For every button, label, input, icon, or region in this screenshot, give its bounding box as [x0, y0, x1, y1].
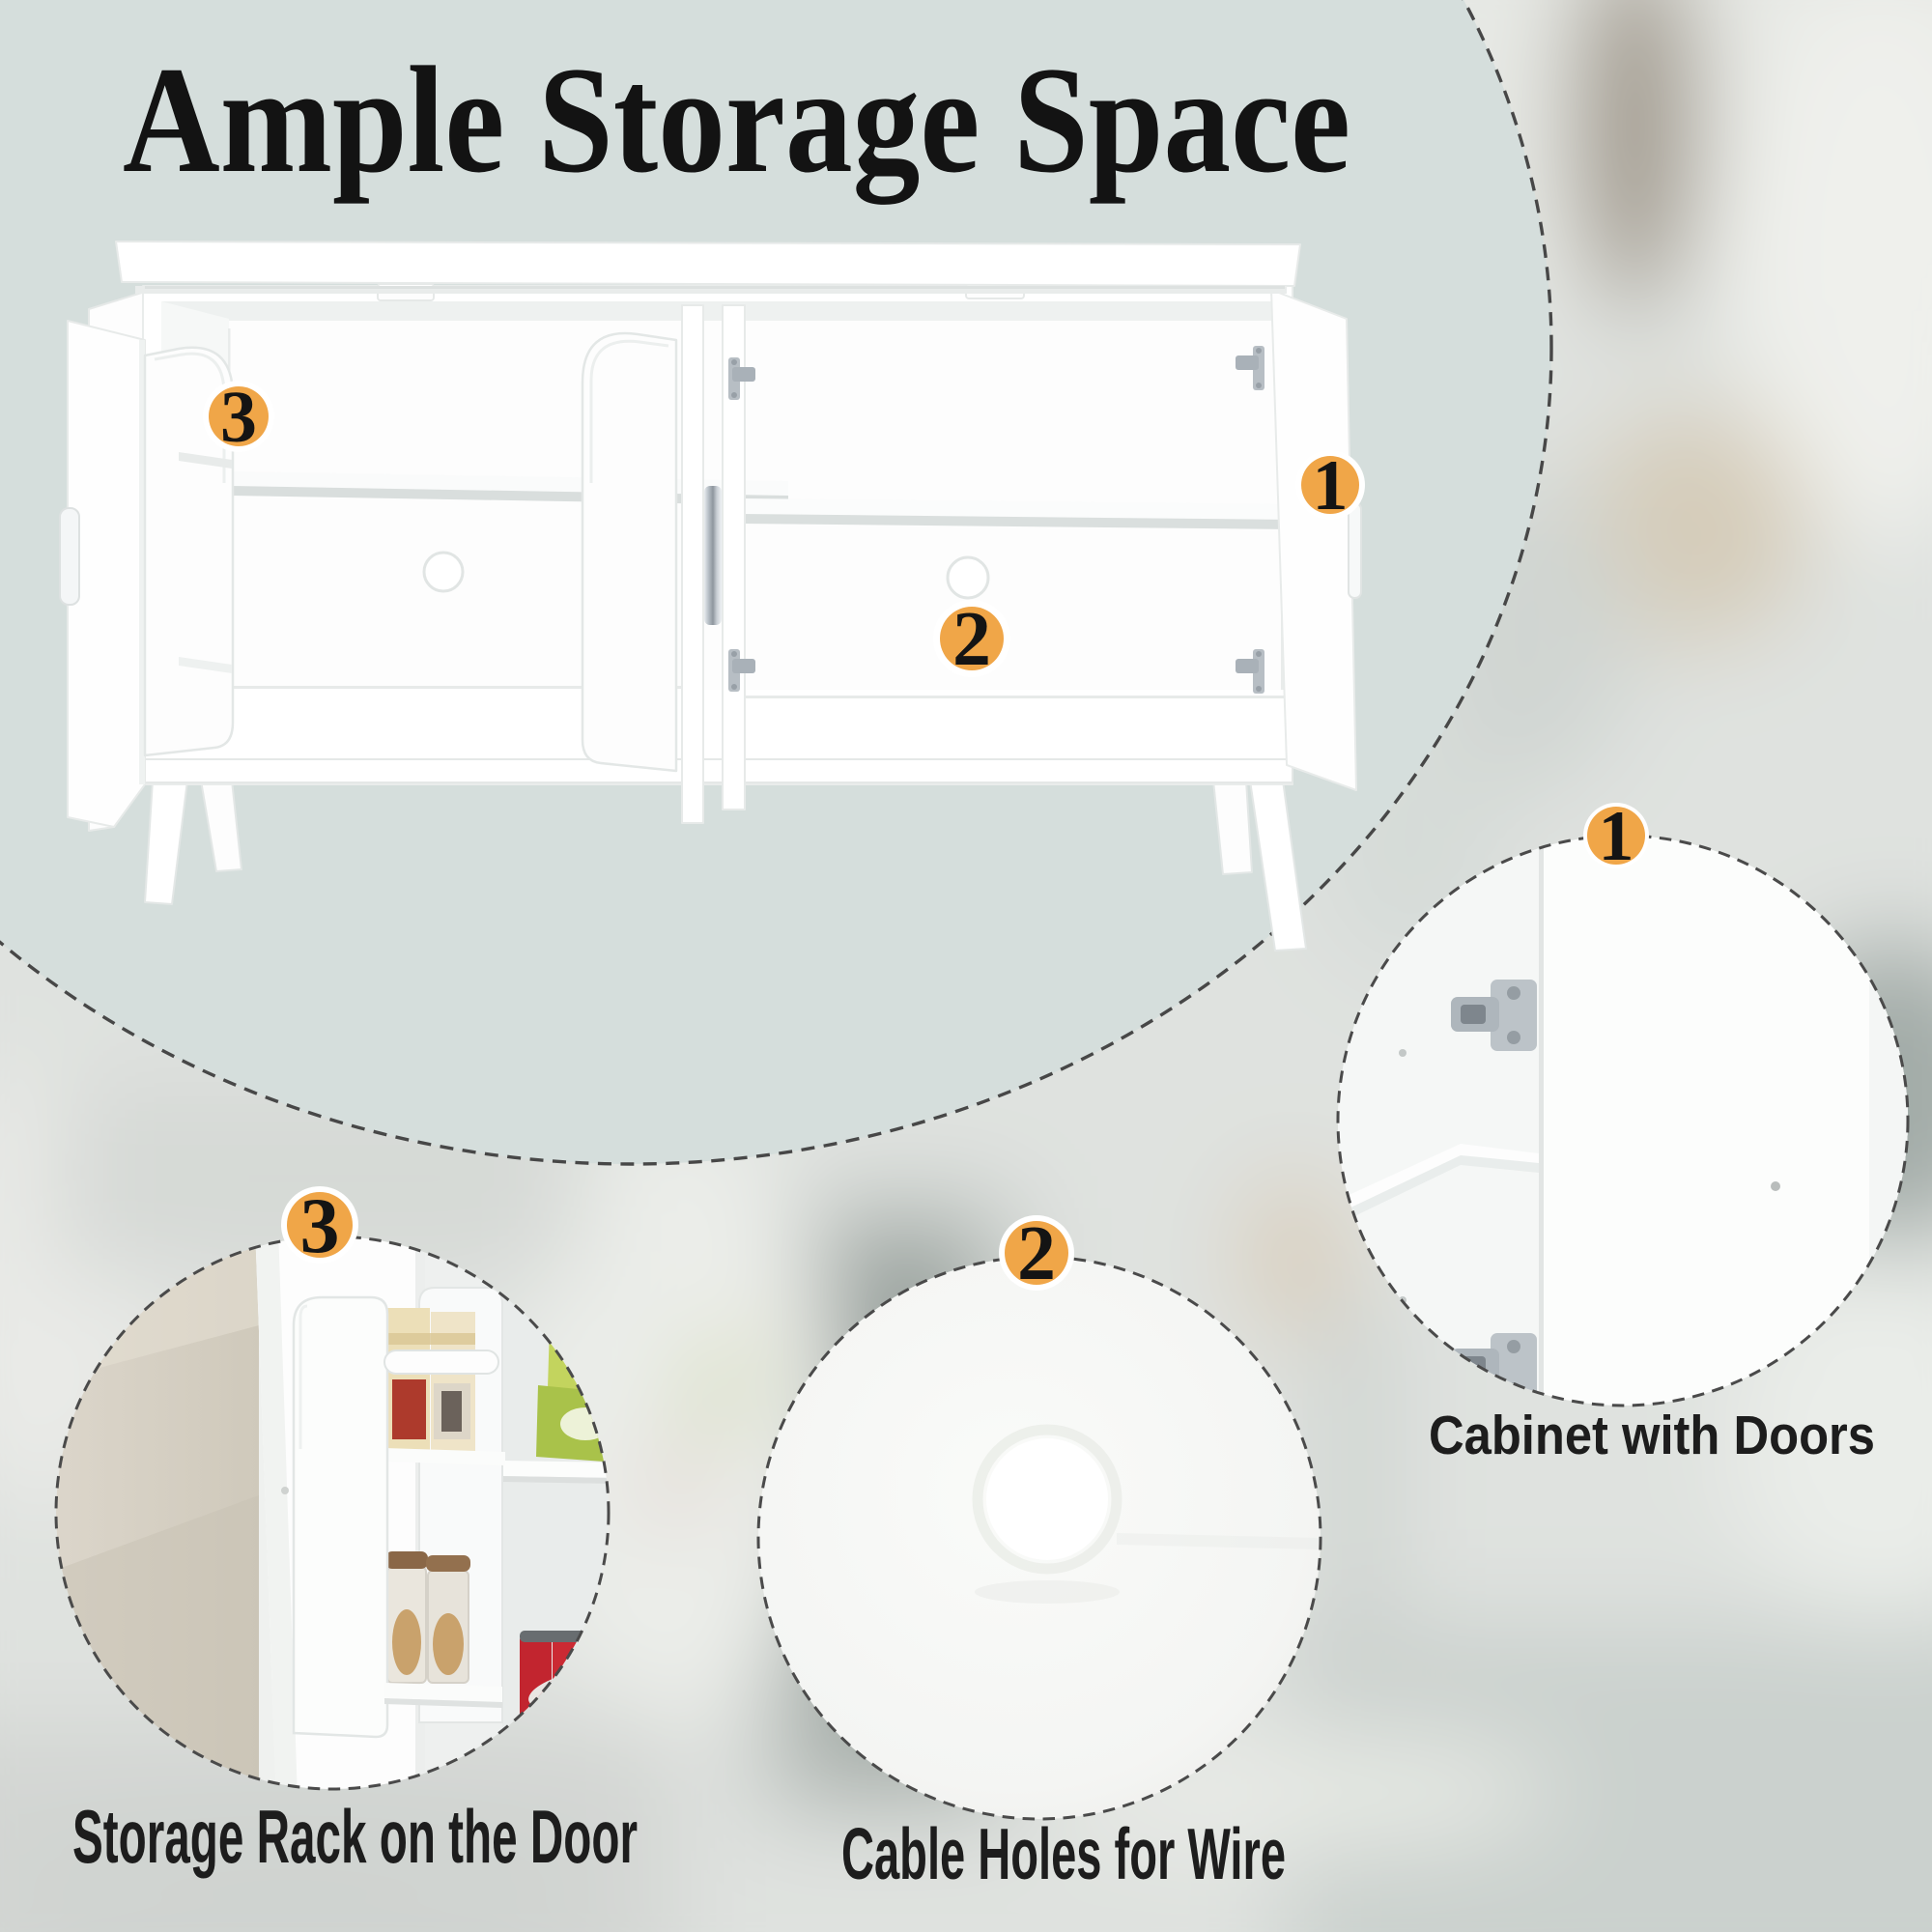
- svg-text:Ample Storage Space: Ample Storage Space: [123, 36, 1350, 205]
- svg-text:Storage Rack on the Door: Storage Rack on the Door: [72, 1794, 638, 1879]
- svg-text:3: 3: [300, 1181, 340, 1269]
- svg-text:Cable Holes for Wire: Cable Holes for Wire: [841, 1813, 1286, 1894]
- svg-text:1: 1: [1599, 797, 1634, 876]
- svg-text:2: 2: [952, 597, 991, 682]
- svg-text:Cabinet with Doors: Cabinet with Doors: [1429, 1405, 1875, 1466]
- svg-text:3: 3: [220, 377, 257, 458]
- svg-text:2: 2: [1017, 1211, 1056, 1296]
- svg-text:1: 1: [1313, 446, 1349, 526]
